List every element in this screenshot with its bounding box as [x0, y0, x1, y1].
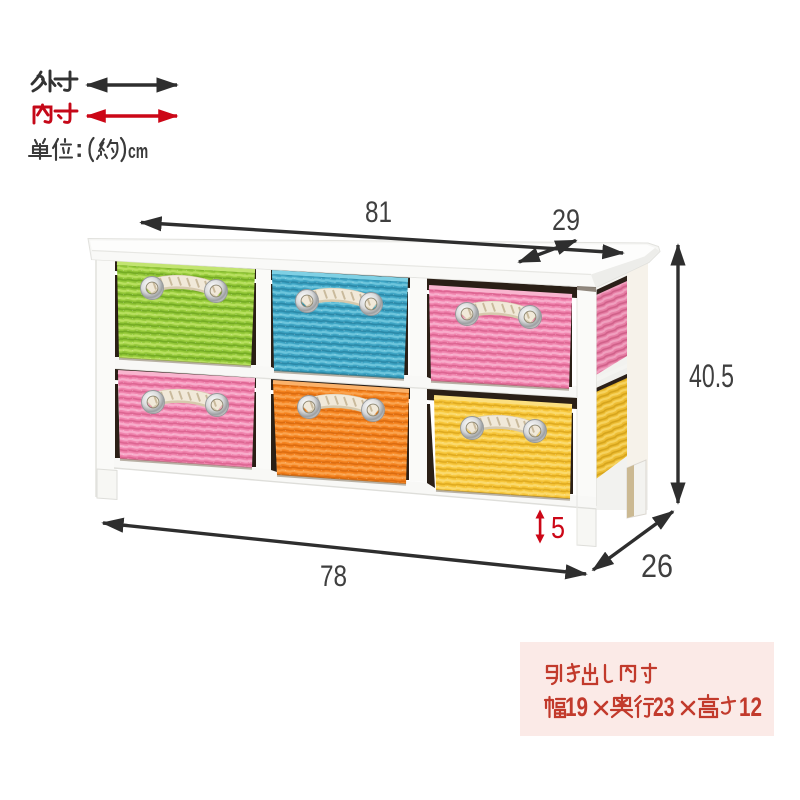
svg-text:23: 23	[653, 692, 675, 722]
svg-text:12: 12	[739, 692, 762, 722]
svg-text:81: 81	[365, 196, 392, 229]
svg-text:40.5: 40.5	[689, 358, 734, 394]
svg-text:29: 29	[552, 204, 580, 237]
svg-text:19: 19	[565, 692, 588, 722]
svg-text:5: 5	[551, 510, 565, 545]
svg-text:26: 26	[641, 548, 673, 584]
svg-text:78: 78	[320, 560, 347, 593]
svg-text:cm: cm	[128, 139, 148, 162]
